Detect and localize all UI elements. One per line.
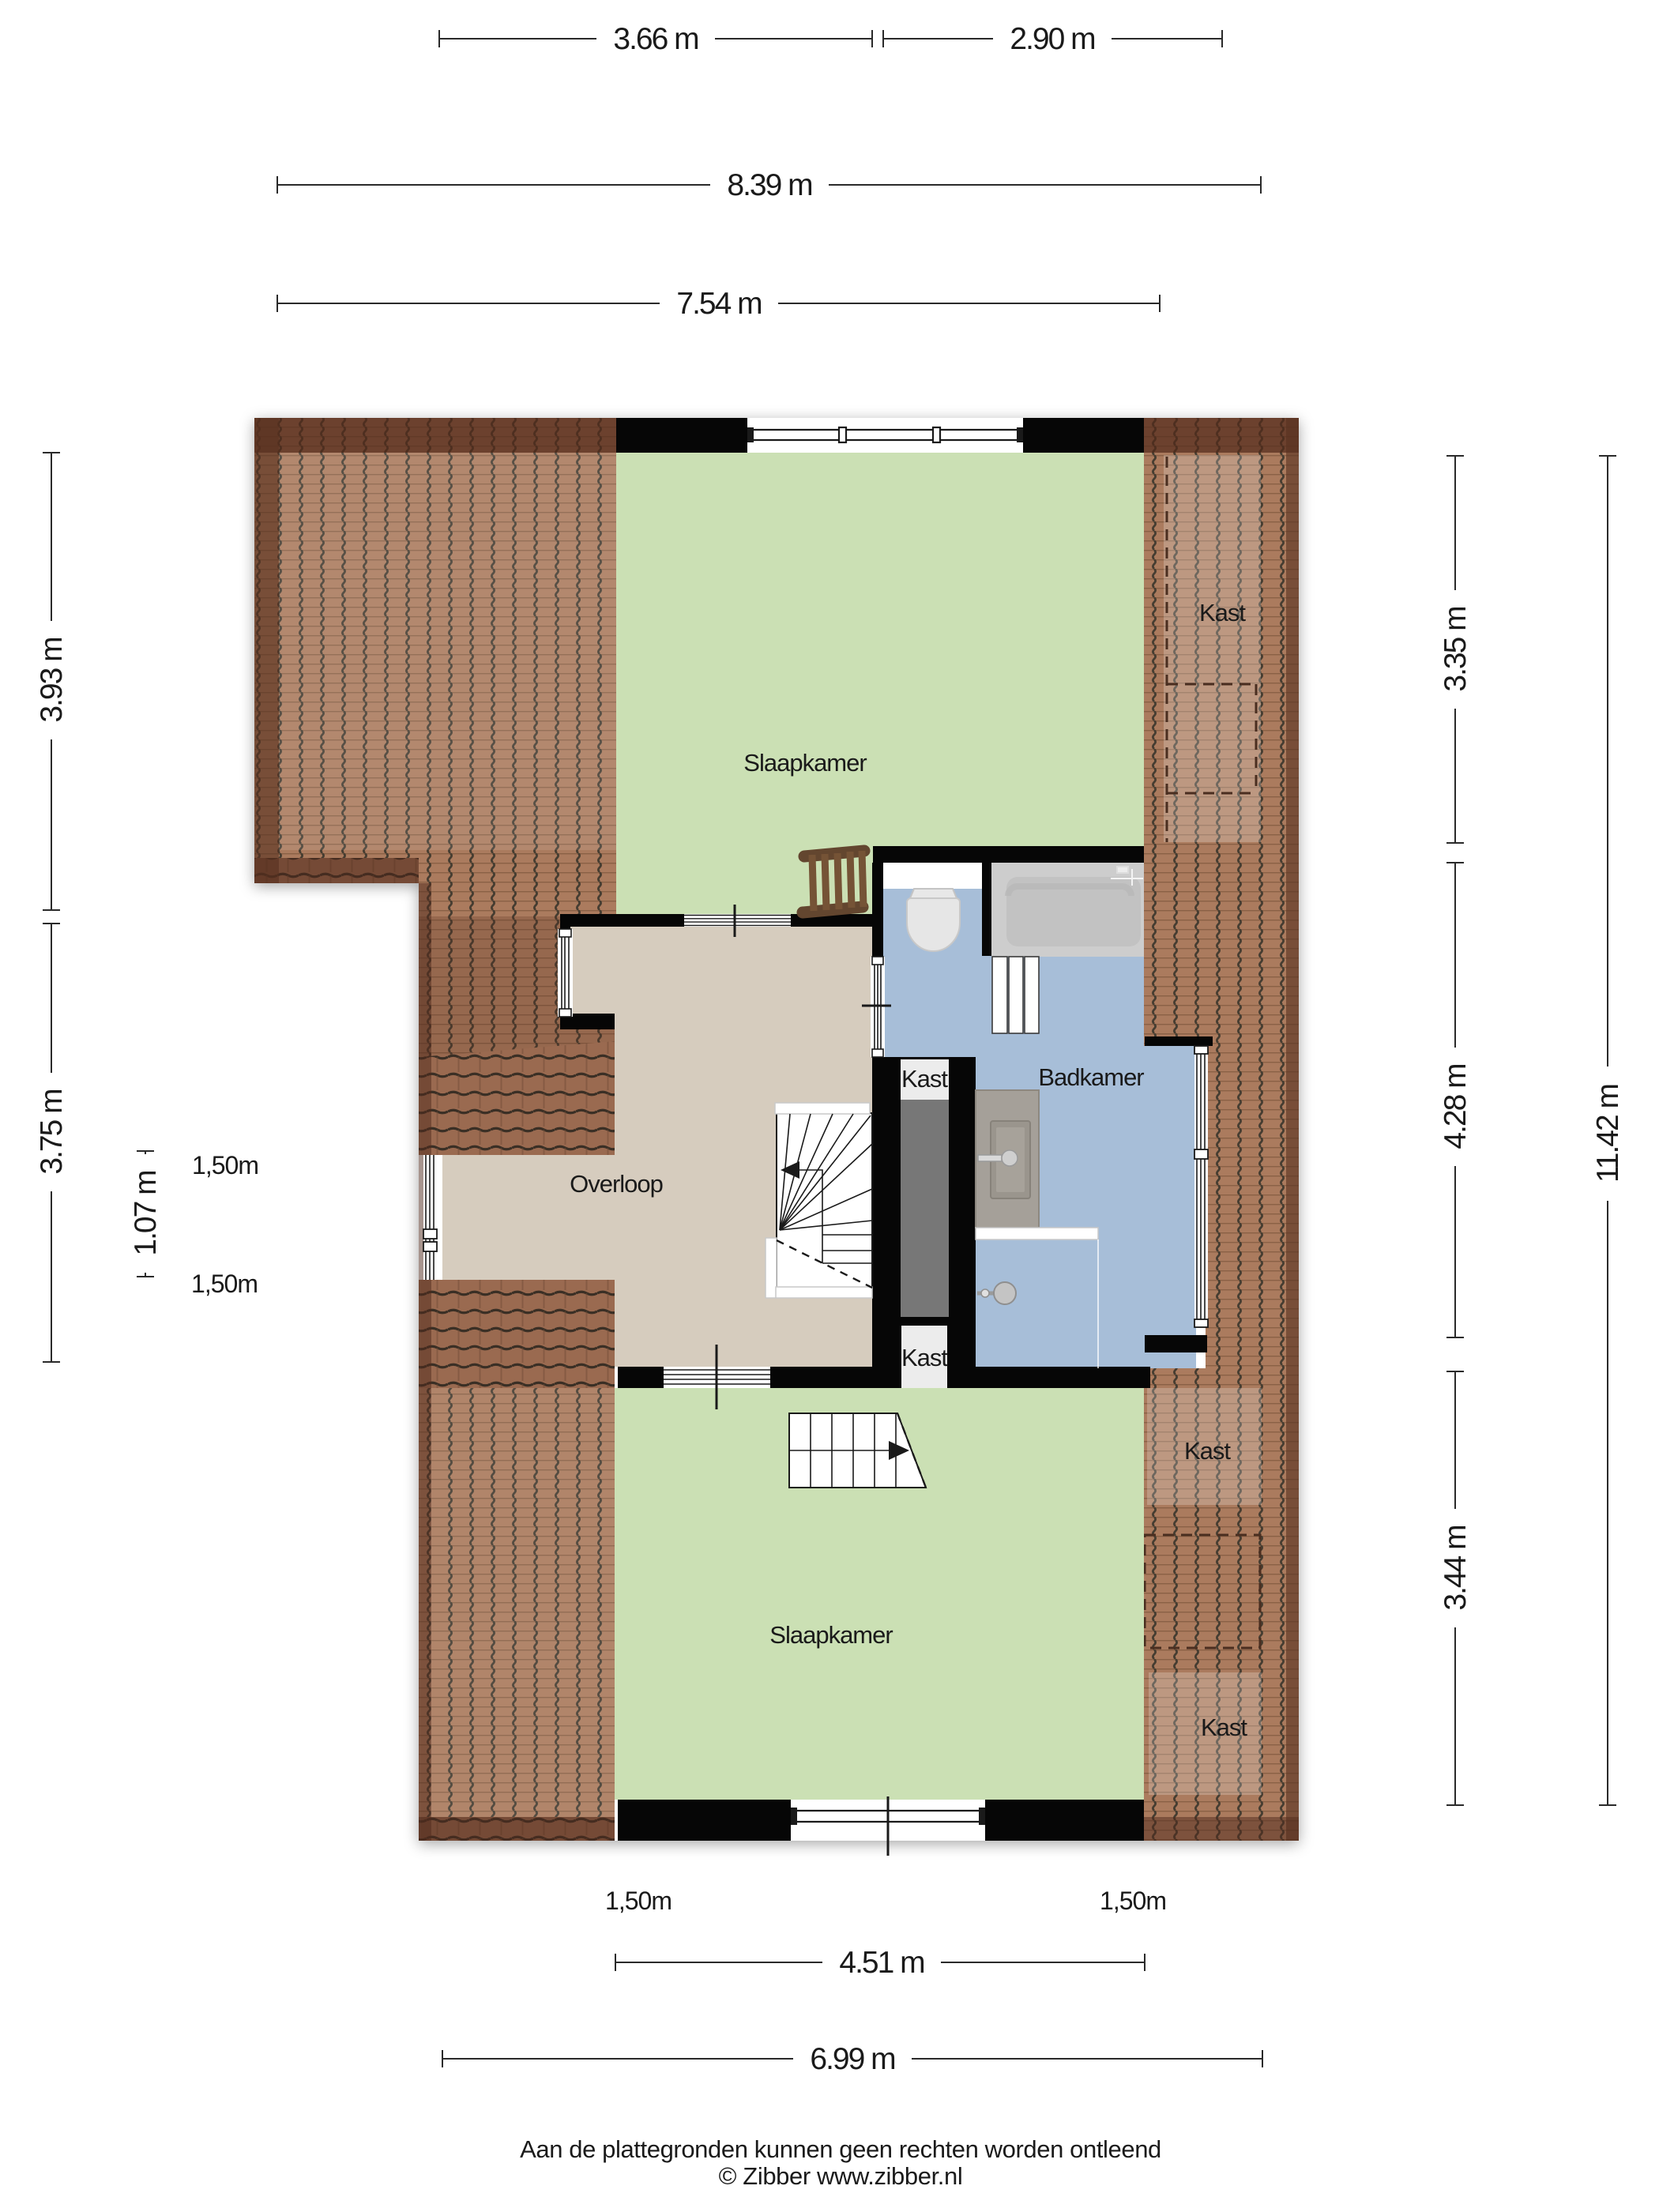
svg-text:11.42 m: 11.42 m bbox=[1591, 1085, 1625, 1183]
svg-text:1,50m: 1,50m bbox=[605, 1887, 671, 1915]
svg-text:4.51 m: 4.51 m bbox=[839, 1946, 924, 1980]
svg-text:3.44 m: 3.44 m bbox=[1439, 1525, 1473, 1610]
svg-text:Kast: Kast bbox=[901, 1065, 948, 1093]
svg-text:7.54 m: 7.54 m bbox=[676, 287, 761, 321]
svg-text:3.75 m: 3.75 m bbox=[35, 1089, 69, 1174]
svg-text:Badkamer: Badkamer bbox=[1038, 1063, 1144, 1091]
svg-text:Slaapkamer: Slaapkamer bbox=[743, 749, 867, 777]
svg-text:6.99 m: 6.99 m bbox=[810, 2042, 894, 2076]
svg-text:Slaapkamer: Slaapkamer bbox=[769, 1621, 893, 1649]
svg-text:2.90 m: 2.90 m bbox=[1010, 22, 1094, 56]
svg-text:Aan de plattegronden kunnen ge: Aan de plattegronden kunnen geen rechten… bbox=[520, 2135, 1161, 2163]
svg-text:Overloop: Overloop bbox=[570, 1170, 663, 1198]
svg-text:3.35 m: 3.35 m bbox=[1439, 607, 1473, 691]
svg-text:3.66 m: 3.66 m bbox=[613, 22, 698, 56]
svg-text:3.93 m: 3.93 m bbox=[35, 638, 69, 722]
svg-text:© Zibber www.zibber.nl: © Zibber www.zibber.nl bbox=[719, 2162, 963, 2190]
svg-text:Kast: Kast bbox=[901, 1344, 948, 1371]
svg-text:1,50m: 1,50m bbox=[192, 1151, 258, 1179]
svg-text:4.28 m: 4.28 m bbox=[1439, 1064, 1473, 1149]
svg-text:Kast: Kast bbox=[1199, 599, 1246, 626]
svg-text:1,50m: 1,50m bbox=[1100, 1887, 1166, 1915]
svg-text:1,50m: 1,50m bbox=[191, 1270, 258, 1298]
svg-text:1.07 m: 1.07 m bbox=[129, 1171, 163, 1255]
svg-text:Kast: Kast bbox=[1184, 1437, 1231, 1465]
svg-text:8.39 m: 8.39 m bbox=[727, 168, 811, 202]
svg-text:Kast: Kast bbox=[1201, 1714, 1247, 1741]
